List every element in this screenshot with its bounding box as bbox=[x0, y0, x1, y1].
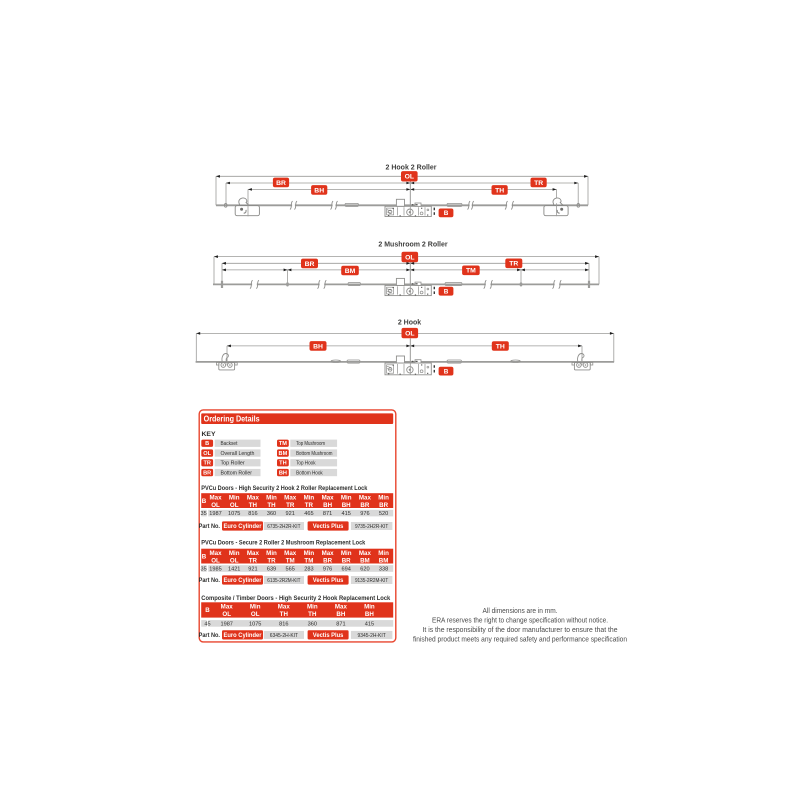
svg-text:TH: TH bbox=[279, 461, 286, 467]
svg-text:Euro Cylinder: Euro Cylinder bbox=[224, 577, 263, 584]
svg-text:BH: BH bbox=[336, 611, 345, 618]
svg-text:871: 871 bbox=[323, 511, 332, 517]
svg-text:520: 520 bbox=[379, 511, 388, 517]
svg-text:TR: TR bbox=[286, 502, 295, 509]
svg-text:9345-2H-KIT: 9345-2H-KIT bbox=[358, 633, 387, 639]
svg-text:PVCu Doors - Secure 2 Roller 2: PVCu Doors - Secure 2 Roller 2 Mushroom … bbox=[201, 539, 365, 546]
svg-text:BR: BR bbox=[323, 557, 332, 564]
svg-text:Part No.: Part No. bbox=[199, 577, 221, 584]
svg-text:Top Mushroom: Top Mushroom bbox=[296, 441, 325, 447]
svg-text:B: B bbox=[205, 441, 209, 447]
svg-text:B: B bbox=[444, 368, 449, 375]
svg-text:694: 694 bbox=[342, 566, 351, 572]
svg-text:BM: BM bbox=[379, 557, 389, 564]
svg-text:2 Hook 2 Roller: 2 Hook 2 Roller bbox=[386, 164, 437, 171]
svg-text:Max: Max bbox=[209, 495, 222, 502]
svg-text:Max: Max bbox=[278, 604, 291, 611]
svg-text:Min: Min bbox=[304, 550, 315, 557]
svg-text:Euro Cylinder: Euro Cylinder bbox=[224, 632, 263, 639]
svg-text:1421: 1421 bbox=[228, 566, 240, 572]
svg-text:Min: Min bbox=[378, 550, 389, 557]
svg-text:Min: Min bbox=[378, 495, 389, 502]
svg-text:TR: TR bbox=[534, 180, 543, 187]
svg-text:Max: Max bbox=[359, 550, 372, 557]
svg-text:ERA reserves the right to chan: ERA reserves the right to change specifi… bbox=[432, 618, 608, 625]
svg-text:921: 921 bbox=[286, 511, 295, 517]
svg-text:All dimensions are in mm.: All dimensions are in mm. bbox=[483, 608, 558, 615]
svg-text:Max: Max bbox=[284, 550, 297, 557]
svg-text:976: 976 bbox=[323, 566, 332, 572]
svg-text:KEY: KEY bbox=[202, 431, 216, 438]
svg-text:1075: 1075 bbox=[228, 511, 240, 517]
svg-text:B: B bbox=[444, 289, 449, 296]
svg-text:BH: BH bbox=[313, 343, 323, 350]
svg-text:921: 921 bbox=[248, 566, 257, 572]
svg-text:B: B bbox=[205, 607, 210, 614]
svg-text:6135-2R2M-KIT: 6135-2R2M-KIT bbox=[267, 578, 301, 584]
svg-text:1985: 1985 bbox=[209, 566, 221, 572]
svg-text:Top Roller: Top Roller bbox=[221, 461, 245, 467]
svg-text:Max: Max bbox=[335, 604, 348, 611]
svg-text:Euro Cylinder: Euro Cylinder bbox=[224, 523, 263, 530]
svg-text:TH: TH bbox=[280, 611, 289, 618]
svg-text:OL: OL bbox=[405, 331, 414, 338]
svg-text:BH: BH bbox=[365, 611, 374, 618]
svg-text:Max: Max bbox=[209, 550, 222, 557]
svg-text:2 Hook: 2 Hook bbox=[398, 319, 421, 326]
svg-text:Vectis Plus: Vectis Plus bbox=[313, 523, 344, 530]
svg-text:BH: BH bbox=[323, 502, 332, 509]
svg-text:Bottom Roller: Bottom Roller bbox=[221, 471, 253, 477]
svg-text:816: 816 bbox=[248, 511, 257, 517]
svg-text:Ordering Details: Ordering Details bbox=[204, 414, 260, 423]
svg-text:OL: OL bbox=[211, 502, 220, 509]
svg-text:Min: Min bbox=[307, 604, 318, 611]
svg-text:BH: BH bbox=[314, 187, 324, 194]
svg-text:TR: TR bbox=[509, 261, 518, 268]
svg-text:Vectis Plus: Vectis Plus bbox=[313, 577, 344, 584]
svg-text:Max: Max bbox=[322, 550, 335, 557]
svg-text:B: B bbox=[444, 210, 449, 217]
svg-text:Bottom Mushroom: Bottom Mushroom bbox=[296, 451, 333, 457]
svg-text:Overall Length: Overall Length bbox=[221, 451, 255, 457]
svg-text:Max: Max bbox=[284, 495, 297, 502]
svg-text:TM: TM bbox=[279, 441, 287, 447]
svg-text:976: 976 bbox=[360, 511, 369, 517]
svg-text:BM: BM bbox=[279, 451, 288, 457]
svg-text:639: 639 bbox=[267, 566, 276, 572]
svg-text:360: 360 bbox=[308, 621, 317, 627]
svg-text:Min: Min bbox=[364, 604, 375, 611]
svg-text:Max: Max bbox=[247, 495, 260, 502]
svg-text:OL: OL bbox=[203, 451, 211, 457]
svg-text:Min: Min bbox=[266, 495, 277, 502]
svg-text:TM: TM bbox=[466, 268, 476, 275]
svg-text:BH: BH bbox=[342, 502, 351, 509]
svg-text:BR: BR bbox=[342, 557, 351, 564]
svg-text:465: 465 bbox=[304, 511, 313, 517]
svg-text:B: B bbox=[202, 553, 207, 560]
svg-text:BR: BR bbox=[305, 261, 315, 268]
svg-text:1987: 1987 bbox=[220, 621, 232, 627]
svg-text:620: 620 bbox=[360, 566, 369, 572]
svg-text:TH: TH bbox=[308, 611, 317, 618]
svg-text:Part No.: Part No. bbox=[199, 632, 221, 639]
svg-text:35: 35 bbox=[200, 511, 206, 517]
svg-text:Min: Min bbox=[341, 550, 352, 557]
svg-text:BR: BR bbox=[360, 502, 369, 509]
svg-text:OL: OL bbox=[211, 557, 220, 564]
svg-text:Part No.: Part No. bbox=[199, 523, 221, 530]
svg-text:OL: OL bbox=[230, 502, 239, 509]
svg-text:Top Hook: Top Hook bbox=[296, 461, 316, 467]
svg-text:Max: Max bbox=[247, 550, 260, 557]
svg-text:BM: BM bbox=[345, 268, 356, 275]
svg-text:2 Mushroom 2 Roller: 2 Mushroom 2 Roller bbox=[378, 241, 448, 248]
svg-text:Vectis Plus: Vectis Plus bbox=[313, 632, 344, 639]
svg-text:OL: OL bbox=[405, 174, 414, 181]
svg-text:BR: BR bbox=[203, 471, 211, 477]
svg-text:OL: OL bbox=[405, 254, 414, 261]
svg-text:Min: Min bbox=[304, 495, 315, 502]
svg-text:TR: TR bbox=[267, 557, 276, 564]
svg-text:360: 360 bbox=[267, 511, 276, 517]
svg-text:338: 338 bbox=[379, 566, 388, 572]
svg-text:TH: TH bbox=[249, 502, 258, 509]
svg-text:Min: Min bbox=[266, 550, 277, 557]
svg-text:1987: 1987 bbox=[209, 511, 221, 517]
svg-text:BR: BR bbox=[276, 180, 286, 187]
svg-text:9135-2R2M-KIT: 9135-2R2M-KIT bbox=[355, 578, 389, 584]
svg-text:OL: OL bbox=[251, 611, 260, 618]
svg-text:It is the responsibility of th: It is the responsibility of the door man… bbox=[423, 627, 618, 634]
svg-text:816: 816 bbox=[279, 621, 288, 627]
svg-text:Bottom Hook: Bottom Hook bbox=[296, 471, 323, 477]
svg-text:415: 415 bbox=[342, 511, 351, 517]
svg-text:6345-2H-KIT: 6345-2H-KIT bbox=[270, 633, 299, 639]
svg-text:TH: TH bbox=[496, 343, 505, 350]
svg-text:BR: BR bbox=[379, 502, 388, 509]
svg-text:565: 565 bbox=[286, 566, 295, 572]
svg-text:415: 415 bbox=[365, 621, 374, 627]
svg-text:Max: Max bbox=[359, 495, 372, 502]
svg-text:BM: BM bbox=[360, 557, 370, 564]
svg-text:B: B bbox=[202, 498, 207, 505]
svg-text:TM: TM bbox=[286, 557, 295, 564]
svg-text:TH: TH bbox=[267, 502, 276, 509]
svg-text:45: 45 bbox=[204, 621, 210, 627]
svg-text:Max: Max bbox=[221, 604, 234, 611]
svg-text:PVCu Doors - High Security 2 H: PVCu Doors - High Security 2 Hook 2 Roll… bbox=[201, 485, 367, 492]
svg-text:TR: TR bbox=[249, 557, 258, 564]
svg-text:TM: TM bbox=[304, 557, 313, 564]
svg-text:finished product meets any req: finished product meets any required safe… bbox=[413, 636, 627, 643]
svg-text:283: 283 bbox=[304, 566, 313, 572]
svg-text:OL: OL bbox=[230, 557, 239, 564]
svg-text:1075: 1075 bbox=[249, 621, 261, 627]
svg-text:35: 35 bbox=[200, 566, 206, 572]
svg-text:TH: TH bbox=[495, 187, 504, 194]
svg-text:Min: Min bbox=[250, 604, 261, 611]
svg-text:Min: Min bbox=[341, 495, 352, 502]
svg-text:871: 871 bbox=[336, 621, 345, 627]
svg-text:9735-2H2R-KIT: 9735-2H2R-KIT bbox=[355, 524, 389, 530]
svg-text:BH: BH bbox=[279, 471, 287, 477]
svg-text:Max: Max bbox=[322, 495, 335, 502]
svg-text:TR: TR bbox=[305, 502, 314, 509]
svg-text:Min: Min bbox=[229, 550, 240, 557]
svg-text:OL: OL bbox=[222, 611, 231, 618]
svg-text:Composite / Timber Doors - Hig: Composite / Timber Doors - High Security… bbox=[201, 595, 390, 602]
svg-text:6735-2H2R-KIT: 6735-2H2R-KIT bbox=[267, 524, 301, 530]
svg-text:Min: Min bbox=[229, 495, 240, 502]
svg-text:TR: TR bbox=[203, 461, 210, 467]
svg-text:Backset: Backset bbox=[221, 441, 238, 447]
